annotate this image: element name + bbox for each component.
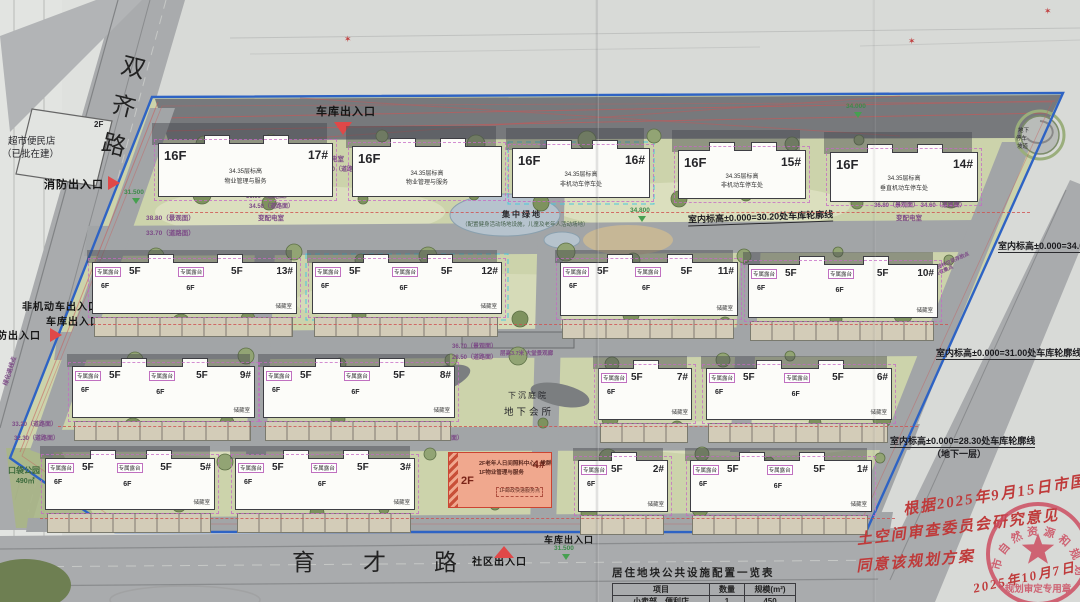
floor-label-6f: 6F bbox=[607, 389, 615, 396]
table-cell-qty: 1 bbox=[710, 596, 745, 602]
table-row: 小卖部、便利店 1 450 bbox=[613, 596, 796, 602]
elevation-annotation: （地下一层） bbox=[932, 449, 986, 460]
floor-label: 5F bbox=[441, 266, 453, 277]
spot-level: 36.80（景观面） 34.60（道路面） bbox=[874, 203, 966, 210]
floor-label: 5F bbox=[109, 370, 121, 381]
building-notch bbox=[867, 144, 893, 153]
floor-label: 5F bbox=[160, 462, 172, 473]
floor-label-6f: 6F bbox=[699, 481, 707, 488]
elevation-marker-value: 34.000 bbox=[846, 103, 866, 110]
building-notch bbox=[263, 135, 289, 144]
building-13#: 专属露台5F专属露台5F13#6F6F储藏室 bbox=[92, 262, 297, 314]
building-notch bbox=[343, 450, 369, 459]
table-col-item: 项目 bbox=[613, 584, 710, 596]
building-notch bbox=[709, 142, 735, 151]
building-notch bbox=[390, 138, 416, 147]
terrace-tag: 专属露台 bbox=[117, 463, 143, 473]
spot-level: 33.70（道路面） bbox=[146, 230, 195, 237]
spot-level: 34.50（道路面） bbox=[249, 204, 294, 211]
floor-label-6f: 6F bbox=[318, 481, 326, 488]
entrance-label: 车库出入口 bbox=[46, 317, 101, 329]
floor-label-6f: 6F bbox=[272, 387, 280, 394]
storage-label: 储藏室 bbox=[916, 306, 933, 314]
building-shadow bbox=[346, 126, 496, 148]
building-9#: 专属露台5F专属露台5F9#6F6F储藏室 bbox=[72, 366, 255, 418]
floor-label: 16F bbox=[684, 155, 706, 170]
terrace-tag: 专属露台 bbox=[95, 267, 121, 277]
building-1#: 专属露台5F专属露台5F1#6F6F储藏室 bbox=[690, 460, 872, 512]
floor-label-6f: 6F bbox=[54, 479, 62, 486]
floor-label: 5F bbox=[597, 266, 609, 277]
floor-label: 5F bbox=[349, 266, 361, 277]
entrance-label: 消防出入口 bbox=[0, 331, 41, 343]
stamp-banner-text: 规划审定专用章 bbox=[1005, 583, 1072, 595]
floor-label: 5F bbox=[129, 266, 141, 277]
building-notch bbox=[315, 358, 341, 367]
building-11#: 专属露台5F专属露台5F11#6F6F储藏室 bbox=[560, 262, 738, 316]
ramp-label-1: 地下 bbox=[1018, 128, 1029, 134]
floor-label: 16F bbox=[836, 157, 858, 172]
building-number: 14# bbox=[953, 157, 973, 171]
building-note: 34.35层标高 bbox=[725, 171, 758, 180]
building-notch bbox=[799, 256, 825, 265]
terrace-tag: 专属露台 bbox=[751, 269, 777, 279]
table-col-qty: 数量 bbox=[710, 584, 745, 596]
building-number: 2# bbox=[653, 464, 664, 475]
building-notch bbox=[633, 360, 659, 369]
building-notch bbox=[379, 358, 405, 367]
survey-mark-icon: ✶ bbox=[1044, 6, 1052, 16]
table-cell-item: 小卖部、便利店 bbox=[613, 596, 710, 602]
community-building-4: 2F 4# 2F老年人日间照料中心、党群 1F物业管理与服务 1F邮政快递服务点 bbox=[448, 452, 552, 508]
terrace-tag: 专属露台 bbox=[392, 267, 418, 277]
building-number: 7# bbox=[677, 372, 688, 383]
survey-mark-icon: ✶ bbox=[908, 36, 916, 46]
elevation-marker-value: 31.500 bbox=[124, 189, 144, 196]
central-green-subtext: （配置健身活动场地设施，儿童及老年人活动场地） bbox=[462, 222, 589, 228]
floor-label-6f: 6F bbox=[244, 479, 252, 486]
building-number: 11# bbox=[718, 266, 734, 277]
floor-label: 5F bbox=[300, 370, 312, 381]
building-notch bbox=[739, 452, 765, 461]
building-7#: 专属露台5F7#6F储藏室 bbox=[598, 368, 692, 420]
spot-level: 36.70（景观面） bbox=[452, 344, 497, 351]
floor-label-6f: 6F bbox=[792, 391, 800, 398]
stamp-arc-text: 市自然资源和规划局 bbox=[957, 482, 1080, 580]
floor-label: 5F bbox=[681, 266, 693, 277]
floor-label-6f: 6F bbox=[156, 389, 164, 396]
building-notch bbox=[204, 135, 230, 144]
floor-label-6f: 6F bbox=[186, 285, 194, 292]
nw-parcel-name: 超市便民店 bbox=[8, 137, 56, 148]
approval-stamp: 市自然资源和规划局 规划审定专用章 bbox=[966, 492, 1080, 602]
building-notch bbox=[440, 138, 466, 147]
storage-label: 储藏室 bbox=[850, 500, 867, 508]
building-note: 34.35层标高 bbox=[410, 168, 443, 177]
building-notch bbox=[427, 254, 453, 263]
terrace-tag: 专属露台 bbox=[48, 463, 74, 473]
facilities-table-title: 居住地块公共设施配置一览表 bbox=[612, 565, 796, 580]
building-notch bbox=[546, 140, 572, 149]
building-notch bbox=[217, 254, 243, 263]
building-8#: 专属露台5F专属露台5F8#6F6F储藏室 bbox=[263, 366, 455, 418]
storage-label: 储藏室 bbox=[393, 498, 410, 506]
spot-level: 变配电室 bbox=[258, 215, 284, 222]
floor-label-6f: 6F bbox=[399, 285, 407, 292]
building-notch bbox=[799, 452, 825, 461]
building-notch bbox=[756, 360, 782, 369]
terrace-tag: 专属露台 bbox=[344, 371, 370, 381]
storage-label: 储藏室 bbox=[716, 304, 733, 312]
setback-line bbox=[40, 518, 895, 519]
nw-parcel-status: （已批在建） bbox=[2, 150, 59, 161]
elevation-marker-icon bbox=[132, 198, 140, 204]
terrace-tag: 专属露台 bbox=[693, 465, 719, 475]
building-notch bbox=[182, 358, 208, 367]
ramp-label-3: 坡道 bbox=[1017, 144, 1028, 150]
floor-label: 5F bbox=[357, 462, 369, 473]
floor-label-6f: 6F bbox=[757, 285, 765, 292]
building-number: 13# bbox=[276, 266, 293, 277]
building-shadow bbox=[824, 132, 972, 154]
building-notch bbox=[611, 452, 637, 461]
building-number: 3# bbox=[400, 462, 411, 473]
floor-label-6f: 6F bbox=[123, 481, 131, 488]
building-notch bbox=[917, 144, 943, 153]
floor-label: 5F bbox=[393, 370, 405, 381]
terrace-tag: 专属露台 bbox=[311, 463, 337, 473]
building-5#: 专属露台5F专属露台5F5#6F6F储藏室 bbox=[45, 458, 215, 510]
storage-stalls bbox=[562, 319, 734, 339]
elevation-marker-icon bbox=[638, 216, 646, 222]
storage-label: 储藏室 bbox=[233, 406, 250, 414]
building-notch bbox=[592, 140, 618, 149]
svg-text:市自然资源和规划局: 市自然资源和规划局 bbox=[957, 482, 1080, 580]
elevation-annotation: 室内标高±0.000=31.00处车库轮廓线 bbox=[936, 348, 1080, 360]
floor-label-6f: 6F bbox=[351, 389, 359, 396]
terrace-tag: 专属露台 bbox=[266, 371, 292, 381]
floor-label: 16F bbox=[518, 153, 540, 168]
building-notch bbox=[363, 254, 389, 263]
entrance-marker-right bbox=[50, 328, 62, 342]
entrance-marker-right bbox=[108, 176, 120, 190]
storage-label: 储藏室 bbox=[275, 302, 292, 310]
building-notch bbox=[863, 256, 889, 265]
floor-label-6f: 6F bbox=[569, 283, 577, 290]
elevation-marker-value: 31.500 bbox=[554, 545, 574, 552]
building-shadow bbox=[672, 130, 800, 152]
building-note: 物业管理与服务 bbox=[224, 176, 266, 185]
elevation-marker-value: 34.800 bbox=[630, 207, 650, 214]
community-use-line2: 1F物业管理与服务 bbox=[479, 470, 524, 476]
community-floor: 2F bbox=[461, 475, 474, 487]
setback-line bbox=[58, 426, 918, 427]
terrace-tag: 专属露台 bbox=[563, 267, 589, 277]
building-notch bbox=[121, 358, 147, 367]
entrance-label: 消防出入口 bbox=[44, 179, 104, 192]
floor-label: 5F bbox=[82, 462, 94, 473]
floor-label-6f: 6F bbox=[715, 389, 723, 396]
terrace-tag: 专属露台 bbox=[635, 267, 661, 277]
storage-stalls bbox=[47, 513, 211, 533]
storage-label: 储藏室 bbox=[193, 498, 210, 506]
floor-label-6f: 6F bbox=[81, 387, 89, 394]
entrance-label: 车库出入口 bbox=[316, 106, 376, 119]
ramp-label-2: 停车 bbox=[1016, 136, 1027, 142]
elevation-marker-icon bbox=[562, 554, 570, 560]
terrace-tag: 专属露台 bbox=[784, 373, 810, 383]
floor-label: 16F bbox=[164, 148, 186, 163]
building-notch bbox=[283, 450, 309, 459]
terrace-tag: 专属露台 bbox=[828, 269, 854, 279]
floor-label: 5F bbox=[631, 372, 643, 383]
elevation-annotation: 室内标高±0.000=34.00处车库轮廓线 bbox=[998, 241, 1080, 253]
floor-label-6f: 6F bbox=[101, 283, 109, 290]
building-12#: 专属露台5F专属露台5F12#6F6F储藏室 bbox=[312, 262, 502, 314]
floor-label: 5F bbox=[611, 464, 623, 475]
road-label-yucai: 育才路 bbox=[292, 550, 505, 576]
site-plan-canvas: 16F17#34.35层标高物业管理与服务16F34.35层标高物业管理与服务1… bbox=[0, 0, 1080, 602]
building-number: 16# bbox=[625, 153, 645, 167]
storage-stalls bbox=[237, 513, 411, 533]
terrace-tag: 专属露台 bbox=[238, 463, 264, 473]
building-number: 5# bbox=[200, 462, 211, 473]
floor-label: 5F bbox=[877, 268, 889, 279]
building-notch bbox=[90, 450, 116, 459]
terrace-tag: 专属露台 bbox=[315, 267, 341, 277]
building-note: 34.35层标高 bbox=[887, 173, 920, 182]
facilities-table: 居住地块公共设施配置一览表 项目 数量 规模(m²) 小卖部、便利店 1 450 bbox=[612, 565, 796, 602]
floor-label: 5F bbox=[727, 464, 739, 475]
building-number: 15# bbox=[781, 155, 801, 169]
building-note: 34.35层标高 bbox=[229, 166, 262, 175]
terrace-tag: 专属露台 bbox=[709, 373, 735, 383]
storage-stalls bbox=[74, 421, 251, 441]
spot-level: 口袋公园 bbox=[8, 466, 40, 475]
building-number: 8# bbox=[440, 370, 451, 381]
spot-level: 33.20（道路面） bbox=[12, 422, 57, 429]
building-10#: 专属露台5F专属露台5F10#6F6F储藏室 bbox=[748, 264, 938, 318]
community-use-line1: 2F老年人日间照料中心、党群 bbox=[479, 461, 551, 467]
floor-label-6f: 6F bbox=[774, 483, 782, 490]
community-use-line3: 1F邮政快递服务点 bbox=[496, 487, 543, 497]
floor-label: 5F bbox=[743, 372, 755, 383]
terrace-tag: 专属露台 bbox=[601, 373, 627, 383]
building-number: 10# bbox=[917, 268, 934, 279]
central-green-label: 集中绿地 bbox=[502, 210, 542, 219]
storage-label: 储藏室 bbox=[480, 302, 497, 310]
building-2#: 专属露台5F2#6F储藏室 bbox=[578, 460, 668, 512]
terrace-tag: 专属露台 bbox=[75, 371, 101, 381]
building-note: 非机动车停车处 bbox=[721, 180, 763, 189]
building-notch bbox=[148, 254, 174, 263]
building-note: 非机动车停车处 bbox=[560, 179, 602, 188]
building-16#: 16F16#34.35层标高非机动车停车处 bbox=[512, 148, 650, 198]
building-number: 6# bbox=[877, 372, 888, 383]
storage-label: 储藏室 bbox=[671, 408, 688, 416]
floor-label: 5F bbox=[785, 268, 797, 279]
setback-line bbox=[88, 324, 948, 325]
survey-mark-icon: ✶ bbox=[344, 34, 352, 44]
table-col-size: 规模(m²) bbox=[745, 584, 796, 596]
table-cell-size: 450 bbox=[745, 596, 796, 602]
spot-level: 38.80（景观面） bbox=[146, 215, 195, 222]
floor-label-6f: 6F bbox=[321, 283, 329, 290]
storage-label: 储藏室 bbox=[870, 408, 887, 416]
spot-level: 绿化退线点 bbox=[3, 356, 19, 387]
building-number: 1# bbox=[857, 464, 868, 475]
floor-label: 5F bbox=[231, 266, 243, 277]
spot-level: 层高3.7米 大堂景观廊 bbox=[500, 351, 553, 357]
building-notch bbox=[146, 450, 172, 459]
floor-label: 5F bbox=[813, 464, 825, 475]
building-15#: 16F15#34.35层标高非机动车停车处 bbox=[678, 150, 806, 199]
building-shadow bbox=[152, 123, 327, 145]
building-shadow bbox=[506, 128, 644, 150]
floor-label: 5F bbox=[272, 462, 284, 473]
terrace-tag: 专属露台 bbox=[149, 371, 175, 381]
building-16F: 16F34.35层标高物业管理与服务 bbox=[352, 146, 502, 197]
building-notch bbox=[607, 254, 633, 263]
building-3#: 专属露台5F专属露台5F3#6F6F储藏室 bbox=[235, 458, 415, 510]
entrance-label: 车库出入口 bbox=[544, 535, 594, 545]
sunken-courtyard-label: 下沉庭院 bbox=[508, 391, 548, 400]
building-number: 17# bbox=[308, 148, 328, 162]
terrace-tag: 专属露台 bbox=[581, 465, 607, 475]
floor-label: 5F bbox=[832, 372, 844, 383]
spot-level: 28.50（道路面） bbox=[452, 355, 497, 362]
building-notch bbox=[751, 142, 777, 151]
spot-level: 变配电室 bbox=[896, 215, 922, 222]
spot-level: 490㎡ bbox=[16, 478, 35, 486]
storage-stalls bbox=[314, 317, 498, 337]
floor-label-6f: 6F bbox=[835, 287, 843, 294]
storage-stalls bbox=[265, 421, 451, 441]
terrace-tag: 专属露台 bbox=[178, 267, 204, 277]
building-notch bbox=[667, 254, 693, 263]
building-note: 物业管理与服务 bbox=[406, 177, 448, 186]
underground-club-label: 地下会所 bbox=[504, 408, 554, 419]
floor-label: 16F bbox=[358, 151, 380, 166]
building-17#: 16F17#34.35层标高物业管理与服务 bbox=[158, 143, 333, 197]
building-notch bbox=[818, 360, 844, 369]
storage-label: 储藏室 bbox=[647, 500, 664, 508]
floor-label-6f: 6F bbox=[587, 481, 595, 488]
setback-line bbox=[170, 212, 1030, 213]
spot-level: 32.30（道路面） bbox=[14, 436, 59, 443]
building-6#: 专属露台5F专属露台5F6#6F6F储藏室 bbox=[706, 368, 892, 420]
elevation-annotation: 室内标高±0.000=28.30处车库轮廓线 bbox=[890, 436, 1035, 448]
building-note: 垂直机动车停车处 bbox=[880, 183, 928, 192]
storage-label: 储藏室 bbox=[433, 406, 450, 414]
terrace-tag: 专属露台 bbox=[767, 465, 793, 475]
building-14#: 16F14#34.35层标高垂直机动车停车处 bbox=[830, 152, 978, 202]
building-number: 12# bbox=[481, 266, 498, 277]
building-note: 34.35层标高 bbox=[564, 169, 597, 178]
entrance-label: 非机动车出入口 bbox=[22, 302, 99, 314]
storage-stalls bbox=[94, 317, 293, 337]
elevation-marker-icon bbox=[854, 112, 862, 118]
floor-label-6f: 6F bbox=[642, 285, 650, 292]
building-number: 9# bbox=[240, 370, 251, 381]
nw-parcel-floor: 2F bbox=[94, 120, 103, 129]
floor-label: 5F bbox=[196, 370, 208, 381]
